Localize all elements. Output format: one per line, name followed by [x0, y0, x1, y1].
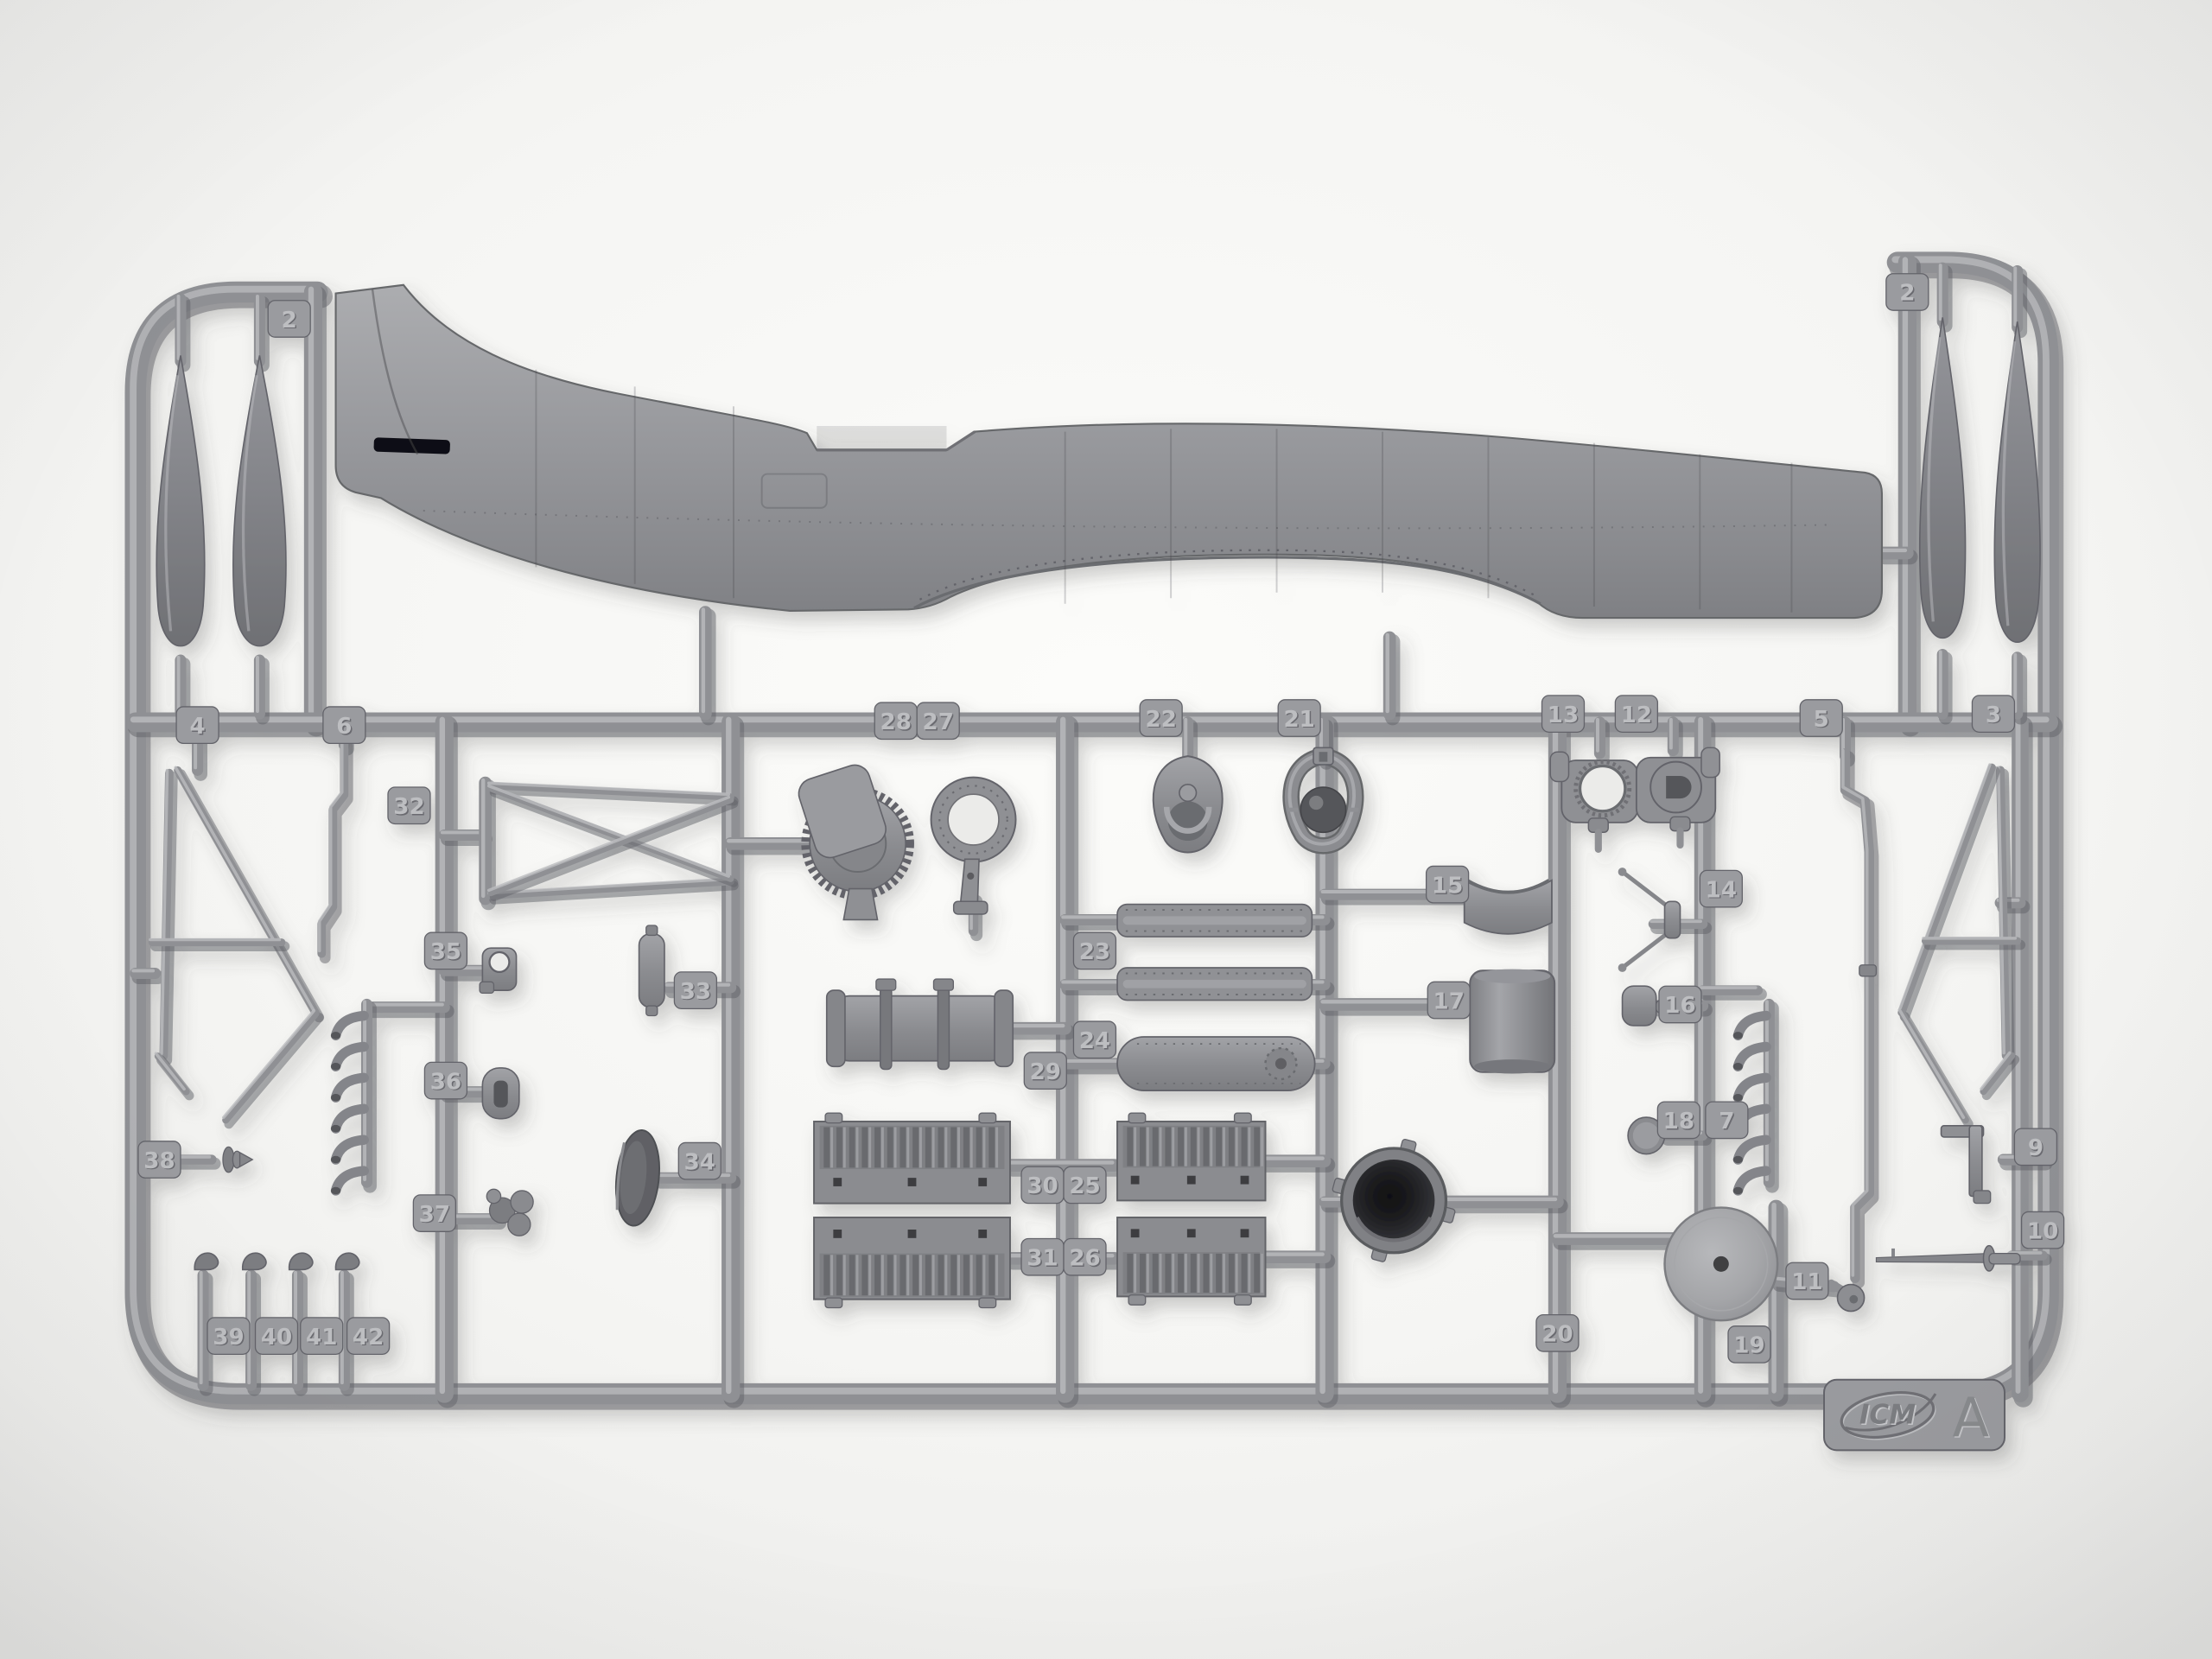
sprue-photo: 2222446632323535363637373838393940404141… — [0, 0, 2212, 1659]
photo-canvas: 2222446632323535363637373838393940404141… — [0, 0, 2212, 1659]
vignette — [0, 0, 2212, 1659]
